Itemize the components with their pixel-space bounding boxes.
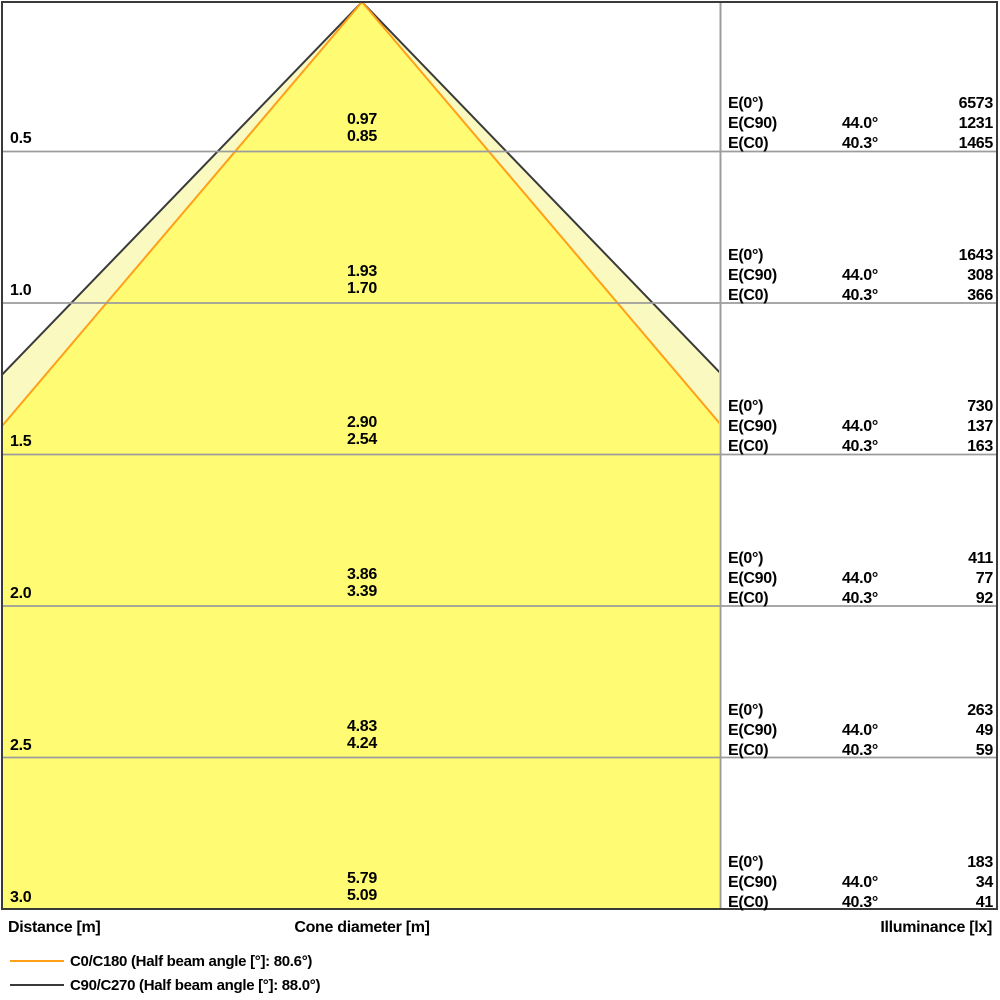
ec90-value: 49	[878, 721, 993, 741]
c90-line-swatch	[10, 984, 64, 986]
ec90-label: E(C90)	[728, 266, 823, 286]
cone-diameter-c90: 1.93	[347, 263, 377, 280]
e0-row: E(0°)411	[728, 549, 993, 569]
ec90-angle: 44.0°	[823, 721, 878, 741]
illuminance-block: E(0°)6573 E(C90)44.0°1231 E(C0)40.3°1465	[728, 94, 993, 154]
cone-diameter-values: 5.79 5.09	[347, 870, 377, 904]
ec0-row: E(C0)40.3°366	[728, 286, 993, 306]
ec90-row: E(C90)44.0°49	[728, 721, 993, 741]
e0-row: E(0°)263	[728, 701, 993, 721]
cone-diameter-c0: 5.09	[347, 887, 377, 904]
distance-label: 1.0	[10, 282, 31, 299]
cone-diameter-values: 1.93 1.70	[347, 263, 377, 297]
ec0-row: E(C0)40.3°1465	[728, 134, 993, 154]
ec90-label: E(C90)	[728, 873, 823, 893]
ec0-angle: 40.3°	[823, 437, 878, 457]
ec0-label: E(C0)	[728, 893, 823, 913]
ec0-angle: 40.3°	[823, 286, 878, 306]
cone-diameter-c90: 0.97	[347, 111, 377, 128]
ec90-row: E(C90)44.0°137	[728, 417, 993, 437]
ec0-label: E(C0)	[728, 134, 823, 154]
ec90-value: 137	[878, 417, 993, 437]
ec90-label: E(C90)	[728, 417, 823, 437]
cone-diameter-c0: 0.85	[347, 128, 377, 145]
distance-label: 1.5	[10, 433, 31, 450]
ec0-angle: 40.3°	[823, 741, 878, 761]
cone-diameter-c0: 2.54	[347, 431, 377, 448]
e0-value: 730	[878, 397, 993, 417]
ec0-row: E(C0)40.3°41	[728, 893, 993, 913]
legend-item-c90: C90/C270 (Half beam angle [°]: 88.0°)	[10, 976, 320, 994]
cone-diameter-values: 2.90 2.54	[347, 414, 377, 448]
ec0-value: 59	[878, 741, 993, 761]
ec0-angle: 40.3°	[823, 589, 878, 609]
cone-diameter-c0: 1.70	[347, 280, 377, 297]
ec0-label: E(C0)	[728, 589, 823, 609]
ec0-label: E(C0)	[728, 286, 823, 306]
ec0-value: 92	[878, 589, 993, 609]
distance-label: 3.0	[10, 889, 31, 906]
illuminance-block: E(0°)730 E(C90)44.0°137 E(C0)40.3°163	[728, 397, 993, 457]
ec90-value: 77	[878, 569, 993, 589]
ec90-row: E(C90)44.0°77	[728, 569, 993, 589]
e0-label: E(0°)	[728, 701, 823, 721]
e0-row: E(0°)6573	[728, 94, 993, 114]
e0-value: 1643	[878, 246, 993, 266]
ec90-label: E(C90)	[728, 114, 823, 134]
legend-label: C90/C270 (Half beam angle [°]: 88.0°)	[70, 977, 320, 994]
illuminance-axis-label: Illuminance [lx]	[880, 919, 992, 937]
ec90-angle: 44.0°	[823, 569, 878, 589]
distance-axis-label: Distance [m]	[8, 919, 100, 937]
ec0-value: 163	[878, 437, 993, 457]
ec0-angle: 40.3°	[823, 893, 878, 913]
ec0-value: 366	[878, 286, 993, 306]
e0-row: E(0°)1643	[728, 246, 993, 266]
e0-value: 6573	[878, 94, 993, 114]
cone-diameter-c90: 4.83	[347, 718, 377, 735]
ec90-value: 34	[878, 873, 993, 893]
cone-diameter-c90: 2.90	[347, 414, 377, 431]
legend-label: C0/C180 (Half beam angle [°]: 80.6°)	[70, 953, 312, 970]
cone-diameter-c90: 5.79	[347, 870, 377, 887]
e0-label: E(0°)	[728, 94, 823, 114]
distance-label: 2.5	[10, 737, 31, 754]
cone-diagram-page: 0.5 1.0 1.5 2.0 2.5 3.0 0.97 0.85 1.93 1…	[0, 0, 1000, 1000]
legend-item-c0: C0/C180 (Half beam angle [°]: 80.6°)	[10, 952, 312, 970]
ec0-row: E(C0)40.3°59	[728, 741, 993, 761]
ec0-value: 41	[878, 893, 993, 913]
ec90-value: 308	[878, 266, 993, 286]
illuminance-block: E(0°)183 E(C90)44.0°34 E(C0)40.3°41	[728, 853, 993, 913]
cone-diameter-c90: 3.86	[347, 566, 377, 583]
e0-value: 411	[878, 549, 993, 569]
cone-diameter-axis-label: Cone diameter [m]	[294, 919, 429, 937]
e0-label: E(0°)	[728, 549, 823, 569]
distance-label: 2.0	[10, 585, 31, 602]
ec90-row: E(C90)44.0°34	[728, 873, 993, 893]
ec90-row: E(C90)44.0°308	[728, 266, 993, 286]
illuminance-block: E(0°)411 E(C90)44.0°77 E(C0)40.3°92	[728, 549, 993, 609]
ec90-angle: 44.0°	[823, 114, 878, 134]
ec90-row: E(C90)44.0°1231	[728, 114, 993, 134]
ec0-row: E(C0)40.3°92	[728, 589, 993, 609]
cone-diameter-values: 4.83 4.24	[347, 718, 377, 752]
ec90-label: E(C90)	[728, 721, 823, 741]
cone-diameter-c0: 3.39	[347, 583, 377, 600]
ec90-label: E(C90)	[728, 569, 823, 589]
illuminance-block: E(0°)263 E(C90)44.0°49 E(C0)40.3°59	[728, 701, 993, 761]
cone-diameter-values: 3.86 3.39	[347, 566, 377, 600]
ec0-label: E(C0)	[728, 741, 823, 761]
ec0-angle: 40.3°	[823, 134, 878, 154]
ec0-value: 1465	[878, 134, 993, 154]
cone-diameter-values: 0.97 0.85	[347, 111, 377, 145]
ec90-angle: 44.0°	[823, 417, 878, 437]
e0-row: E(0°)730	[728, 397, 993, 417]
e0-row: E(0°)183	[728, 853, 993, 873]
illuminance-block: E(0°)1643 E(C90)44.0°308 E(C0)40.3°366	[728, 246, 993, 306]
ec90-angle: 44.0°	[823, 266, 878, 286]
ec90-value: 1231	[878, 114, 993, 134]
e0-value: 183	[878, 853, 993, 873]
c0-line-swatch	[10, 960, 64, 962]
ec90-angle: 44.0°	[823, 873, 878, 893]
distance-label: 0.5	[10, 130, 31, 147]
e0-label: E(0°)	[728, 397, 823, 417]
e0-value: 263	[878, 701, 993, 721]
e0-label: E(0°)	[728, 853, 823, 873]
cone-diameter-c0: 4.24	[347, 735, 377, 752]
ec0-row: E(C0)40.3°163	[728, 437, 993, 457]
ec0-label: E(C0)	[728, 437, 823, 457]
e0-label: E(0°)	[728, 246, 823, 266]
